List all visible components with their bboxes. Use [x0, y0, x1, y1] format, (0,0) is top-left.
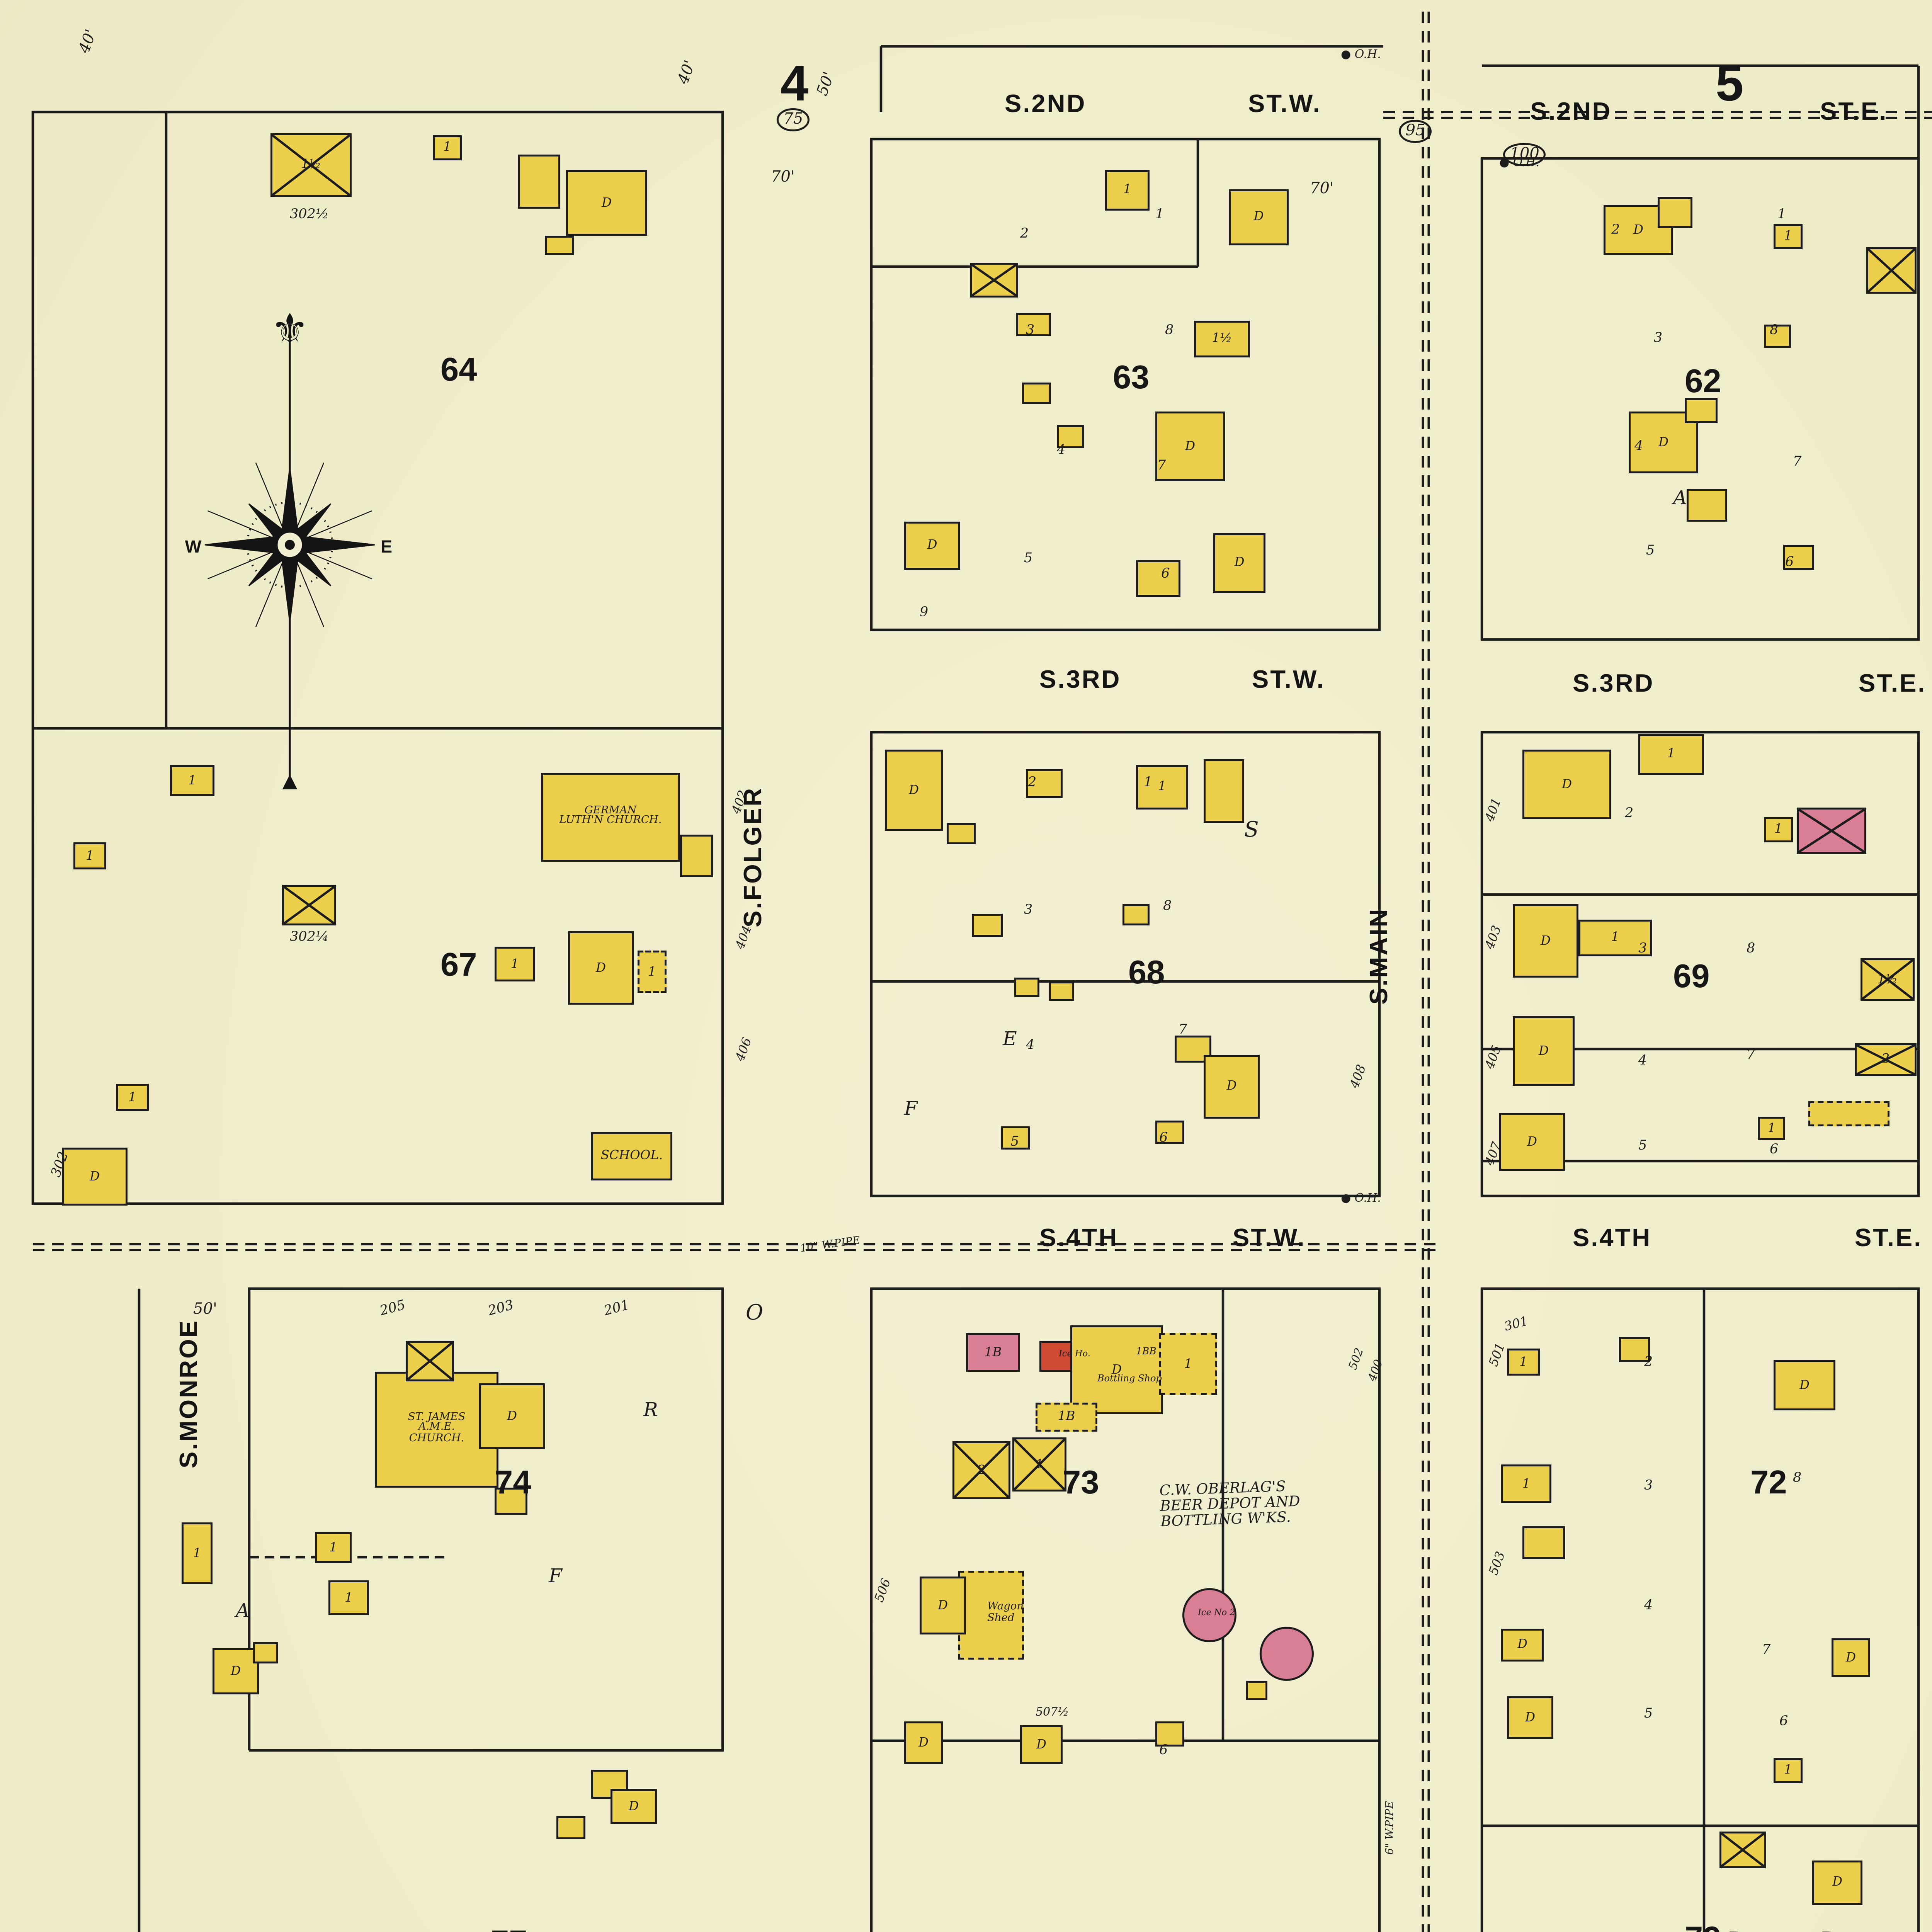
map-annotation: Wagon Shed — [987, 1604, 1024, 1626]
map-annotation: F — [549, 1569, 562, 1589]
building: D — [1020, 1725, 1063, 1764]
building — [253, 1642, 278, 1663]
building — [1808, 1101, 1889, 1126]
map-annotation: 5 — [1646, 545, 1655, 559]
block-number: 79 — [1685, 1920, 1721, 1932]
building: GERMAN LUTH'N CHURCH. — [541, 773, 680, 862]
building: D — [479, 1383, 545, 1449]
street-name: S.4TH — [1039, 1223, 1118, 1252]
building: D — [904, 1721, 943, 1764]
map-annotation: Ice No 2 — [1198, 1611, 1235, 1621]
building: 1 — [182, 1522, 213, 1584]
block-number: 62 — [1685, 363, 1721, 402]
building: D — [611, 1789, 657, 1824]
page-number: 5 — [1716, 54, 1743, 114]
map-annotation: 6 — [1161, 568, 1170, 582]
street-name: ST.W. — [1248, 89, 1321, 118]
building: 1 — [495, 947, 535, 981]
street-name: S.2ND — [1005, 89, 1086, 118]
map-annotation: 1 — [1144, 777, 1152, 791]
map-annotation: 5 — [1024, 553, 1032, 567]
building — [1260, 1627, 1314, 1681]
map-annotation: 1BB — [1136, 1349, 1156, 1359]
building — [1246, 1681, 1267, 1700]
building: 1 — [1105, 170, 1150, 211]
building — [970, 263, 1018, 298]
block-number: 77 — [491, 1924, 527, 1932]
map-annotation: 6 — [1779, 1716, 1788, 1730]
map-annotation: 3 — [1024, 904, 1032, 918]
map-annotation: 6 — [1785, 556, 1794, 571]
map-annotation: 7 — [1179, 1024, 1187, 1038]
map-annotation: 5 — [1644, 1708, 1653, 1722]
building — [518, 155, 560, 209]
building: 1 — [1764, 817, 1793, 842]
map-annotation: 6 — [1159, 1132, 1168, 1146]
map-annotation: 302¼ — [290, 931, 329, 946]
map-annotation: 3 — [1644, 1480, 1653, 1494]
building: 1 — [1758, 1117, 1785, 1140]
building: 1B — [1036, 1403, 1097, 1432]
building — [972, 914, 1003, 937]
building: D — [568, 931, 634, 1005]
building: D — [1513, 1016, 1575, 1086]
map-annotation: 302½ — [290, 209, 329, 223]
street-name: S.3RD — [1573, 668, 1654, 697]
map-annotation: Bottling Shop — [1097, 1376, 1162, 1385]
map-annotation: 5 — [1638, 1140, 1647, 1154]
building — [282, 885, 336, 925]
building: 1 — [73, 842, 106, 869]
building: 1½ — [1194, 321, 1250, 357]
building: 1 — [1159, 1333, 1217, 1395]
building: D — [1204, 1055, 1260, 1119]
building: 1 — [1774, 1758, 1803, 1783]
map-annotation: C.W. OBERLAG'S BEER DEPOT AND BOTTLING W… — [1159, 1479, 1301, 1529]
building: 1 — [1774, 224, 1803, 249]
street-name: S.2ND — [1530, 97, 1612, 126]
building: D — [1499, 1113, 1565, 1171]
map-annotation: 3 — [1026, 325, 1034, 339]
building — [1797, 808, 1866, 854]
map-annotation: 4 — [1638, 1055, 1647, 1069]
building: D — [1774, 1360, 1835, 1410]
block-number: 69 — [1673, 958, 1710, 997]
map-annotation: 3 — [1638, 943, 1647, 957]
scanned-map-page: { "map": { "title_stamp": { "date": "APR… — [0, 0, 1932, 1932]
building: 2 — [1855, 1043, 1917, 1076]
map-annotation: F — [904, 1101, 918, 1122]
building: 1 — [328, 1580, 369, 1615]
street-name: ST.E. — [1820, 97, 1888, 126]
building: D — [566, 170, 647, 236]
map-annotation: 4 — [1634, 440, 1643, 455]
block-number: 73 — [1063, 1464, 1099, 1503]
building: D — [1812, 1861, 1862, 1905]
map-annotation: 8 — [1163, 900, 1172, 915]
map-annotation: 5 — [1010, 1136, 1019, 1150]
building — [556, 1816, 585, 1839]
building — [406, 1341, 454, 1381]
building — [545, 236, 574, 255]
map-annotation: 8 — [1793, 1472, 1801, 1486]
block-number: 68 — [1128, 954, 1165, 993]
street-name: S.4TH — [1573, 1223, 1651, 1252]
building — [1049, 981, 1074, 1001]
block-number: 63 — [1113, 359, 1150, 398]
map-annotation: A — [1673, 491, 1687, 511]
map-annotation: 6 — [1770, 1144, 1778, 1158]
building: 1 — [116, 1084, 149, 1111]
map-annotation: O — [746, 1302, 763, 1325]
building: D — [885, 750, 943, 831]
building — [1122, 904, 1150, 925]
street-name: S.FOLGER — [738, 787, 767, 927]
building — [1658, 197, 1692, 228]
building — [947, 823, 976, 844]
building: 1½ — [270, 133, 352, 197]
building: 1 — [1638, 734, 1704, 775]
building: D — [1522, 750, 1611, 819]
map-annotation: 4 — [1057, 444, 1065, 459]
map-annotation: 2 — [1028, 777, 1036, 791]
map-annotation: 2 — [1625, 808, 1633, 822]
building: 1 — [315, 1532, 352, 1563]
map-annotation: 2 — [1020, 228, 1029, 242]
building — [1522, 1526, 1565, 1559]
building: 1 — [1507, 1349, 1540, 1376]
map-annotation: 507½ — [1036, 1708, 1069, 1720]
map-annotation: 4 — [1644, 1600, 1653, 1614]
map-annotation: 1 — [1777, 209, 1786, 223]
building: D — [1501, 1629, 1544, 1662]
building: D — [1070, 1325, 1163, 1414]
street-name: ST.W. — [1252, 665, 1325, 694]
map-annotation: 8 — [1747, 943, 1755, 957]
building: 1 — [1012, 1437, 1066, 1492]
map-annotation: 8 — [1165, 325, 1173, 339]
building: 1B — [966, 1333, 1020, 1372]
page-number: 4 — [781, 54, 808, 114]
map-annotation: 70' — [1310, 182, 1334, 198]
map-annotation: R — [643, 1403, 658, 1423]
map-annotation: E — [1003, 1032, 1017, 1052]
building: D — [1229, 189, 1289, 245]
building: SCHOOL. — [591, 1132, 672, 1180]
map-annotation: 1 — [1155, 209, 1164, 223]
block-number: 74 — [495, 1464, 531, 1503]
map-annotation: 4 — [1026, 1039, 1034, 1054]
building: 1 — [170, 765, 214, 796]
block-number: 72 — [1750, 1464, 1787, 1503]
building: 2 — [952, 1441, 1010, 1499]
map-annotation: S — [1244, 819, 1259, 842]
map-annotation: 7 — [1747, 1049, 1755, 1063]
map-annotation: 6" W.PIPE — [1387, 1801, 1398, 1855]
building: D — [904, 522, 960, 570]
street-name: S.MONROE — [174, 1319, 203, 1468]
street-name: ST.W. — [1233, 1223, 1306, 1252]
building — [1204, 759, 1244, 823]
building: D — [920, 1577, 966, 1634]
building — [1014, 978, 1039, 997]
street-name: S.3RD — [1039, 665, 1121, 694]
block-number: 64 — [440, 352, 477, 390]
map-annotation: 50' — [193, 1302, 217, 1318]
street-name: ST.E. — [1859, 668, 1926, 697]
building — [1687, 489, 1727, 522]
building: D — [1507, 1696, 1553, 1739]
building: D — [213, 1648, 259, 1694]
map-annotation: 2 — [1611, 224, 1620, 238]
building: 1 — [1501, 1464, 1551, 1503]
map-annotation: ● O.H. — [1499, 158, 1539, 170]
building: D — [1213, 533, 1265, 593]
building — [1136, 560, 1180, 597]
map-annotation: ● O.H. — [1341, 1194, 1381, 1206]
map-annotation: 70' — [771, 170, 795, 186]
building — [1022, 383, 1051, 404]
map-sheet: ⚜ W E — [0, 0, 1932, 1932]
building: 1 — [433, 135, 462, 160]
map-annotation: A — [236, 1604, 250, 1624]
building: D — [1513, 904, 1578, 978]
building: 1½ — [1861, 958, 1915, 1001]
map-annotation: 9 — [920, 607, 928, 621]
map-annotation: ● O.H. — [1341, 50, 1381, 62]
building — [1866, 247, 1917, 294]
map-annotation: 7 — [1762, 1644, 1770, 1658]
map-annotation: Ice Ho. — [1059, 1352, 1090, 1362]
map-annotation: 2 — [1644, 1356, 1653, 1371]
block-number: 67 — [440, 947, 477, 985]
map-annotation: 7 — [1157, 460, 1166, 474]
building — [1719, 1832, 1766, 1868]
map-annotation: 3 — [1654, 332, 1662, 347]
map-annotation: 6 — [1159, 1745, 1168, 1759]
street-name: S.MAIN — [1364, 907, 1393, 1005]
building: 1 — [638, 951, 667, 993]
building: D — [1832, 1638, 1870, 1677]
map-annotation: 7 — [1793, 456, 1801, 470]
street-name: ST.E. — [1855, 1223, 1922, 1252]
map-annotation: 8 — [1770, 325, 1778, 339]
building — [680, 835, 713, 877]
